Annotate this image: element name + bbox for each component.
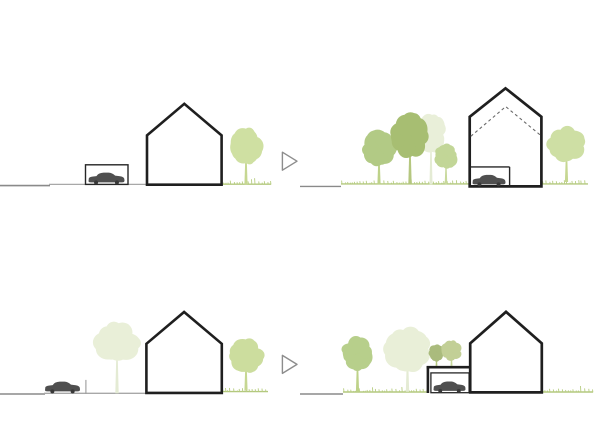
tree-canopy-lobe [451,343,462,353]
house-outline [146,312,221,393]
car-wheel [115,180,119,184]
tree-canopy-lobe [246,348,264,362]
car-wheel [94,180,98,184]
car-wheel [438,389,442,393]
tree [434,143,457,184]
elevation-diagram-svg [0,0,600,430]
tree-canopy-lobe [567,134,585,150]
car-wheel [477,182,481,186]
tree-canopy-lobe [246,137,263,156]
car-silhouette [45,382,80,394]
tree-canopy-lobe [360,345,372,358]
transform-arrow-icon [282,355,297,373]
tree [383,327,430,392]
tree [390,112,428,184]
house-outline [147,104,222,185]
scene-top-right [300,88,588,186]
tree-canopy-lobe [448,150,457,159]
tree-canopy-lobe [432,122,445,136]
car-body [45,382,80,392]
tree [342,336,373,392]
tree [229,338,264,390]
car-wheel [457,389,461,393]
house-outline [470,312,542,393]
transform-arrow-icon [282,152,297,170]
car-wheel [71,389,75,393]
tree-canopy-lobe [118,333,139,351]
car-wheel [497,182,501,186]
house-outline [470,88,542,186]
tree-canopy-lobe [410,118,427,141]
scene-top-left [0,104,271,186]
tree [441,340,461,368]
tree [546,126,585,182]
tree-canopy-lobe [408,334,431,352]
tree [93,322,141,394]
scene-bottom-right [300,312,593,394]
scene-bottom-left [0,312,268,394]
diagram-canvas [0,0,600,430]
car-wheel [50,389,54,393]
tree [230,128,263,185]
